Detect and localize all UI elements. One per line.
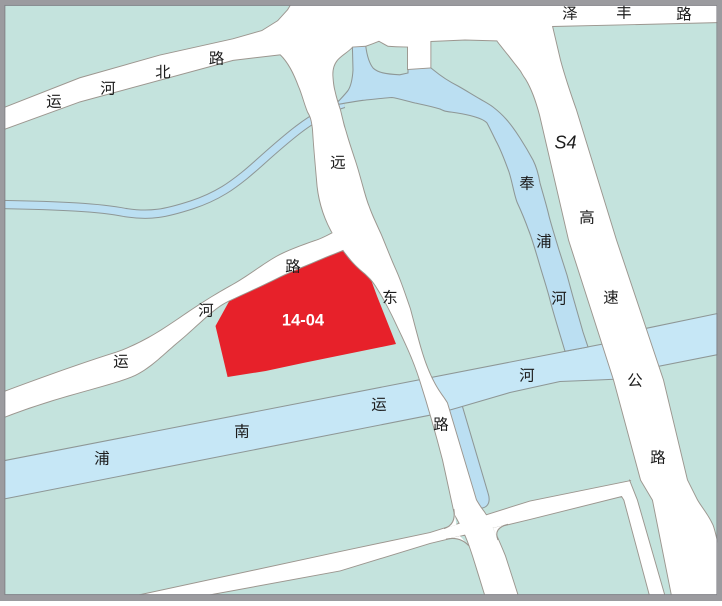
svg-text:S4: S4: [554, 133, 576, 153]
svg-text:14-04: 14-04: [282, 312, 325, 330]
